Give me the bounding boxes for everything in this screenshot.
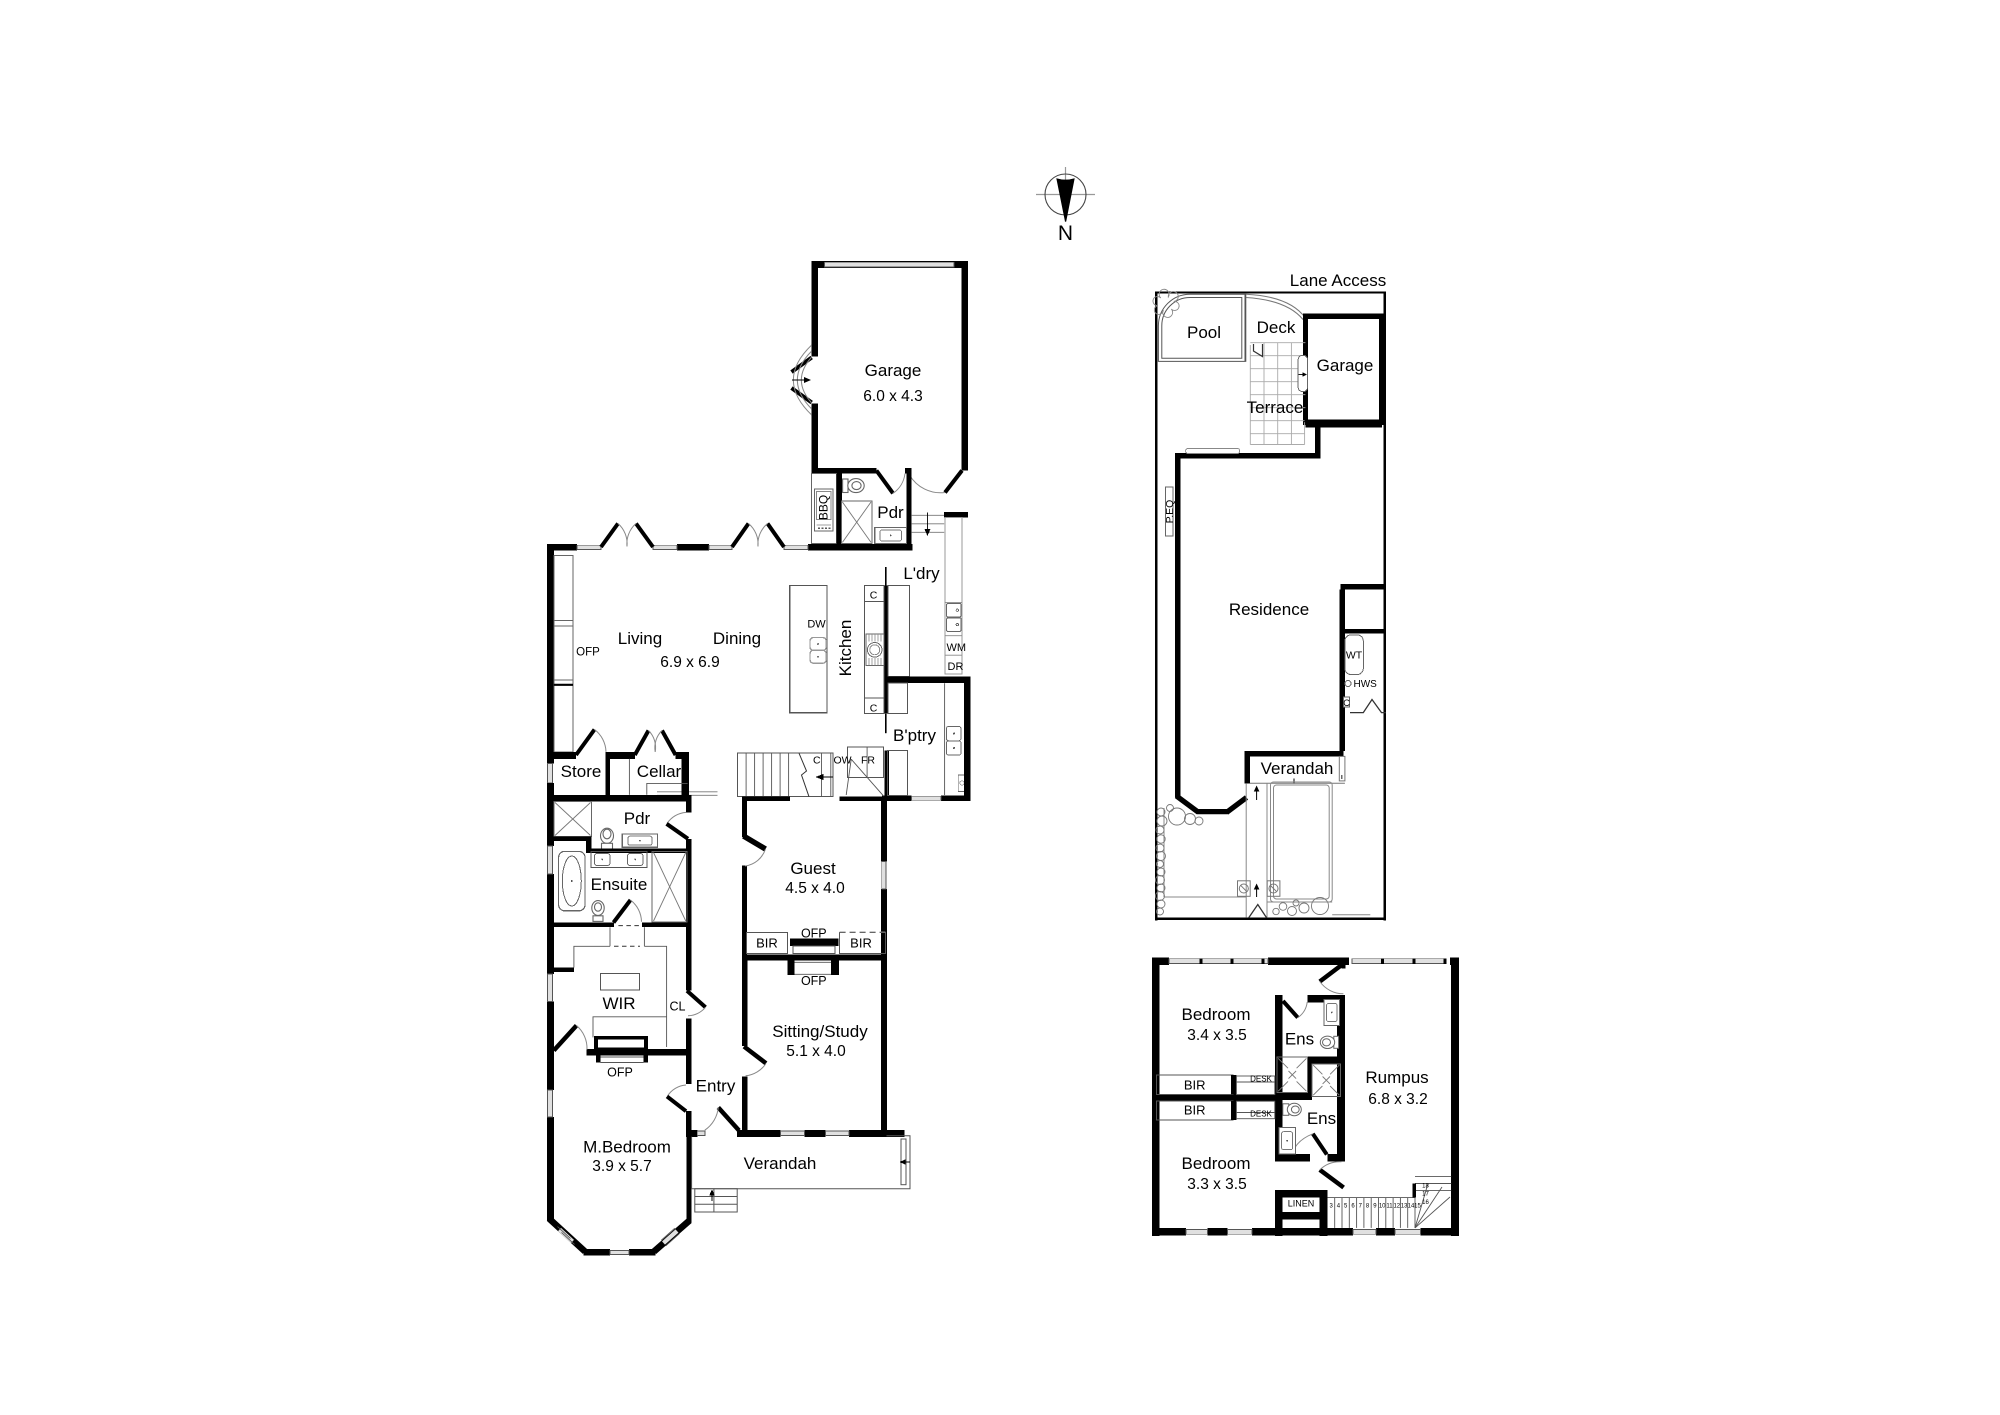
svg-text:5.1 x 4.0: 5.1 x 4.0 — [786, 1043, 846, 1060]
svg-text:Terrace: Terrace — [1247, 398, 1304, 417]
svg-text:BIR: BIR — [850, 936, 872, 951]
svg-text:6.0 x 4.3: 6.0 x 4.3 — [863, 388, 922, 405]
svg-text:C: C — [870, 590, 878, 602]
svg-text:Garage: Garage — [865, 361, 922, 380]
svg-text:Living: Living — [618, 629, 662, 648]
svg-text:Garage: Garage — [1317, 356, 1374, 375]
svg-text:OFP: OFP — [607, 1066, 633, 1080]
svg-text:Ens: Ens — [1285, 1030, 1314, 1049]
svg-text:BIR: BIR — [1184, 1103, 1206, 1118]
svg-text:11: 11 — [1386, 1204, 1393, 1210]
svg-text:C: C — [1343, 698, 1350, 709]
svg-text:L'dry: L'dry — [903, 564, 940, 583]
svg-text:Guest: Guest — [790, 859, 836, 878]
svg-text:Lane Access: Lane Access — [1290, 271, 1386, 290]
svg-text:DESK: DESK — [1250, 1075, 1272, 1084]
svg-text:C: C — [813, 755, 821, 767]
svg-text:OFP: OFP — [576, 647, 600, 659]
svg-text:P.EQ: P.EQ — [1164, 500, 1176, 524]
svg-text:C: C — [870, 703, 878, 715]
svg-text:HWS: HWS — [1354, 679, 1378, 690]
svg-text:WM: WM — [947, 642, 967, 654]
svg-text:FR: FR — [861, 755, 875, 767]
svg-text:3.4 x 3.5: 3.4 x 3.5 — [1187, 1027, 1246, 1044]
svg-text:10: 10 — [1379, 1204, 1386, 1210]
svg-text:WIR: WIR — [602, 994, 635, 1013]
svg-text:12: 12 — [1393, 1204, 1400, 1210]
svg-text:LINEN: LINEN — [1288, 1199, 1315, 1209]
svg-text:M.Bedroom: M.Bedroom — [583, 1138, 671, 1157]
svg-text:Store: Store — [561, 762, 602, 781]
svg-text:DW: DW — [807, 619, 826, 631]
svg-text:Bedroom: Bedroom — [1182, 1005, 1251, 1024]
svg-text:Entry: Entry — [696, 1077, 736, 1096]
svg-text:Ensuite: Ensuite — [591, 875, 648, 894]
svg-text:Sitting/Study: Sitting/Study — [772, 1022, 868, 1041]
svg-text:CL: CL — [670, 1000, 686, 1014]
svg-text:16: 16 — [1422, 1200, 1429, 1206]
svg-text:Pdr: Pdr — [624, 809, 651, 828]
svg-text:3.9 x 5.7: 3.9 x 5.7 — [592, 1158, 651, 1175]
svg-text:18: 18 — [1422, 1184, 1429, 1190]
svg-text:17: 17 — [1422, 1192, 1429, 1198]
svg-text:15: 15 — [1414, 1204, 1421, 1210]
svg-text:DESK: DESK — [1250, 1110, 1272, 1119]
svg-text:Deck: Deck — [1257, 318, 1296, 337]
svg-text:DR: DR — [948, 661, 964, 673]
svg-text:BIR: BIR — [756, 936, 778, 951]
svg-text:Bedroom: Bedroom — [1182, 1154, 1251, 1173]
svg-text:6.8 x 3.2: 6.8 x 3.2 — [1368, 1091, 1427, 1108]
svg-text:Cellar: Cellar — [637, 762, 682, 781]
svg-text:WT: WT — [1346, 650, 1363, 662]
svg-text:OW: OW — [833, 755, 851, 767]
svg-text:3.3 x 3.5: 3.3 x 3.5 — [1187, 1176, 1246, 1193]
svg-text:Kitchen: Kitchen — [836, 620, 855, 677]
svg-text:BIR: BIR — [1184, 1078, 1206, 1093]
svg-text:Pool: Pool — [1187, 323, 1221, 342]
svg-text:B'ptry: B'ptry — [893, 726, 936, 745]
svg-text:Verandah: Verandah — [1261, 759, 1334, 778]
svg-text:Dining: Dining — [713, 629, 761, 648]
svg-text:Rumpus: Rumpus — [1365, 1068, 1428, 1087]
svg-text:Verandah: Verandah — [744, 1154, 817, 1173]
svg-text:Ens: Ens — [1307, 1109, 1336, 1128]
svg-text:BBQ: BBQ — [817, 495, 831, 520]
svg-text:4.5 x 4.0: 4.5 x 4.0 — [785, 880, 845, 897]
svg-text:OFP: OFP — [801, 974, 827, 988]
svg-text:6.9 x 6.9: 6.9 x 6.9 — [660, 654, 719, 671]
svg-text:Pdr: Pdr — [877, 503, 904, 522]
svg-text:N: N — [1058, 222, 1073, 245]
svg-text:Residence: Residence — [1229, 600, 1309, 619]
